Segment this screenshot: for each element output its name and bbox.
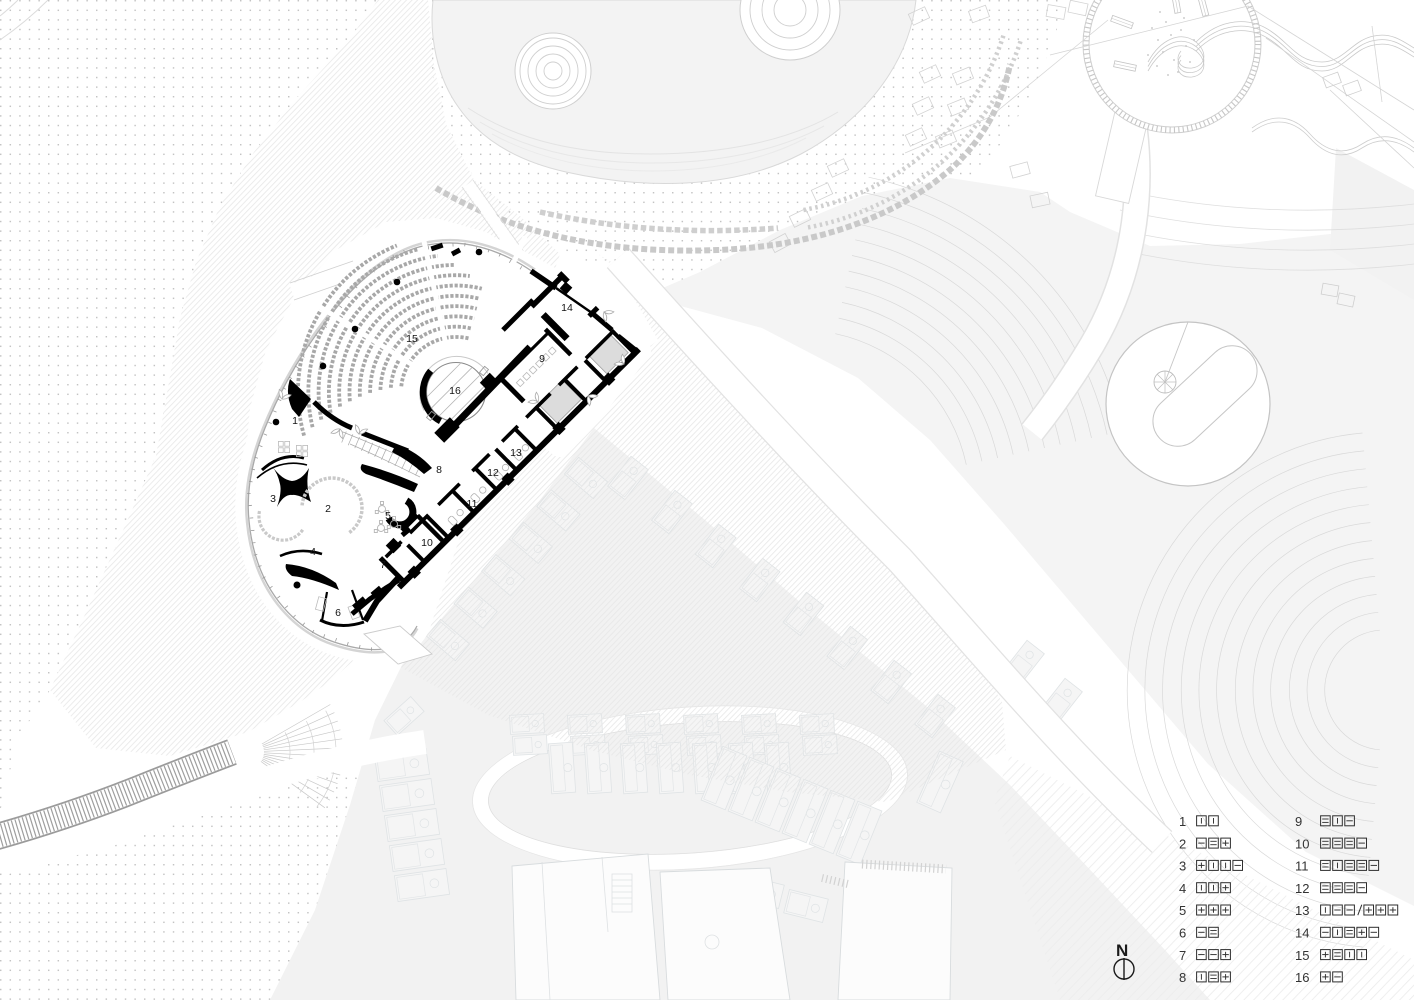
svg-text:2: 2: [1179, 836, 1186, 851]
svg-text:13: 13: [1295, 903, 1309, 918]
svg-text:3: 3: [270, 493, 276, 505]
svg-text:7: 7: [1179, 948, 1186, 963]
svg-text:5: 5: [385, 510, 391, 522]
svg-text:11: 11: [467, 498, 478, 510]
svg-text:12: 12: [487, 467, 499, 479]
svg-text:5: 5: [1179, 903, 1186, 918]
svg-text:6: 6: [335, 607, 341, 619]
svg-text:6: 6: [1179, 926, 1186, 941]
svg-text:4: 4: [310, 546, 316, 558]
svg-text:8: 8: [1179, 970, 1186, 985]
svg-text:7: 7: [380, 559, 386, 571]
svg-text:N: N: [1116, 941, 1128, 960]
svg-text:12: 12: [1295, 881, 1309, 896]
svg-text:14: 14: [1295, 926, 1309, 941]
svg-text:11: 11: [1295, 859, 1309, 874]
svg-text:1: 1: [1179, 814, 1186, 829]
svg-text:3: 3: [1179, 859, 1186, 874]
svg-text:13: 13: [510, 447, 522, 459]
svg-text:10: 10: [421, 537, 433, 549]
svg-text:14: 14: [561, 302, 573, 314]
svg-text:8: 8: [436, 464, 442, 476]
svg-text:16: 16: [449, 385, 461, 397]
svg-text:10: 10: [1295, 836, 1309, 851]
svg-text:9: 9: [539, 353, 545, 365]
svg-text:15: 15: [1295, 948, 1309, 963]
svg-text:16: 16: [1295, 970, 1309, 985]
svg-text:15: 15: [406, 333, 418, 345]
svg-text:1: 1: [292, 415, 298, 427]
svg-text:9: 9: [1295, 814, 1302, 829]
svg-text:4: 4: [1179, 881, 1186, 896]
svg-text:2: 2: [325, 503, 331, 515]
